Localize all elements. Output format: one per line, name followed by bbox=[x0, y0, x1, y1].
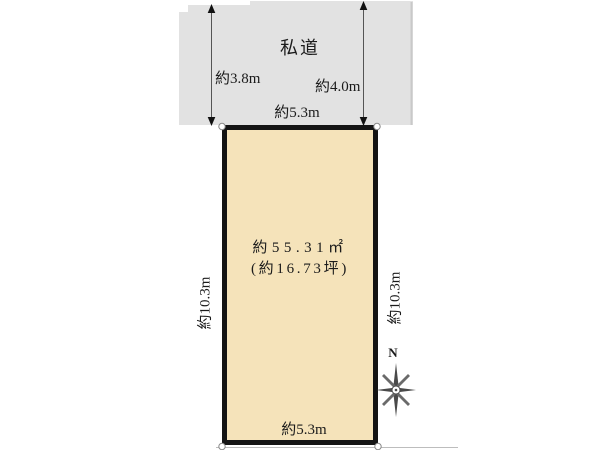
dimension-label-road-left: 約3.8m bbox=[215, 72, 260, 87]
corner-marker-bottom-left bbox=[219, 443, 225, 449]
road-label: 私道 bbox=[280, 39, 320, 57]
site-plan-shapes bbox=[0, 0, 600, 450]
corner-marker-top-right bbox=[374, 123, 380, 129]
corner-marker-top-left bbox=[219, 123, 225, 129]
compass-rose-icon bbox=[376, 363, 416, 417]
site-plan-diagram: 私道 約3.8m 約4.0m 約5.3m 約55.31㎡ (約16.73坪) 約… bbox=[0, 0, 600, 450]
lot-area bbox=[225, 128, 376, 443]
dimension-label-lot-top: 約5.3m bbox=[274, 106, 319, 121]
lot-area-tsubo-label: (約16.73坪) bbox=[251, 262, 349, 277]
corner-marker-bottom-right bbox=[375, 443, 381, 449]
dimension-label-lot-left: 約10.3m bbox=[199, 277, 214, 330]
dimension-label-lot-right: 約10.3m bbox=[389, 272, 404, 325]
lot-area-sqm-label: 約55.31㎡ bbox=[252, 241, 347, 256]
dimension-label-lot-bottom: 約5.3m bbox=[281, 423, 326, 438]
dimension-label-road-right: 約4.0m bbox=[315, 80, 360, 95]
compass-north-label: N bbox=[388, 346, 397, 359]
